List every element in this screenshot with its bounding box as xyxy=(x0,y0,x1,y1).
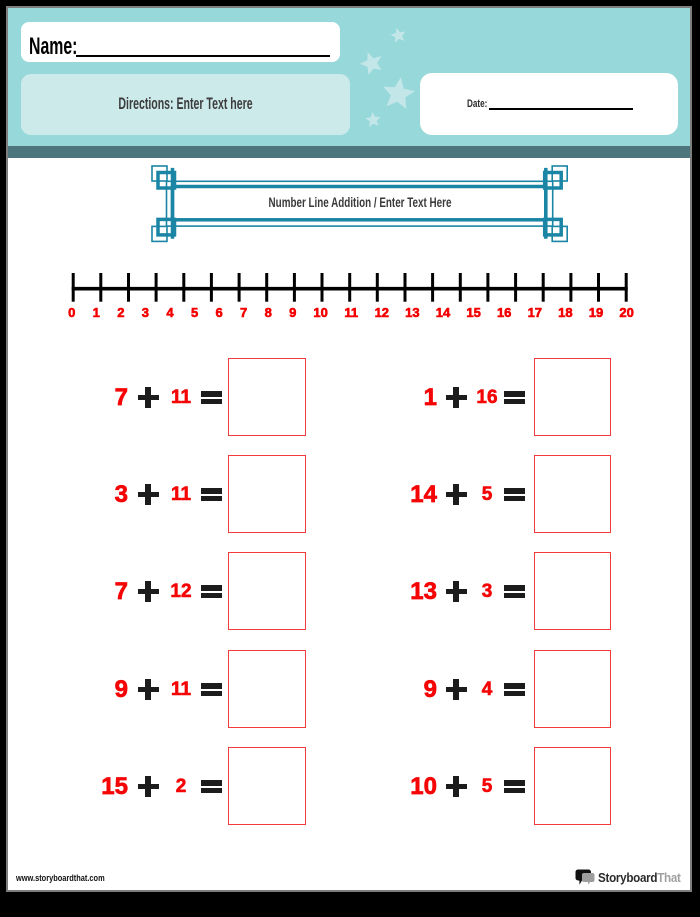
svg-text:17: 17 xyxy=(528,305,542,320)
svg-text:10: 10 xyxy=(313,305,327,320)
svg-text:3: 3 xyxy=(142,305,149,320)
svg-text:9: 9 xyxy=(289,305,296,320)
svg-text:8: 8 xyxy=(265,305,272,320)
svg-text:19: 19 xyxy=(589,305,603,320)
svg-text:2: 2 xyxy=(117,305,124,320)
svg-text:6: 6 xyxy=(215,305,222,320)
svg-text:5: 5 xyxy=(191,305,198,320)
svg-text:14: 14 xyxy=(436,305,451,320)
svg-text:18: 18 xyxy=(558,305,572,320)
svg-text:20: 20 xyxy=(619,305,633,320)
svg-text:11: 11 xyxy=(344,305,358,320)
svg-text:0: 0 xyxy=(68,305,75,320)
svg-text:4: 4 xyxy=(166,305,174,320)
svg-text:1: 1 xyxy=(93,305,100,320)
svg-text:7: 7 xyxy=(240,305,247,320)
svg-text:16: 16 xyxy=(497,305,511,320)
svg-text:12: 12 xyxy=(375,305,389,320)
svg-text:13: 13 xyxy=(405,305,419,320)
svg-text:15: 15 xyxy=(466,305,480,320)
